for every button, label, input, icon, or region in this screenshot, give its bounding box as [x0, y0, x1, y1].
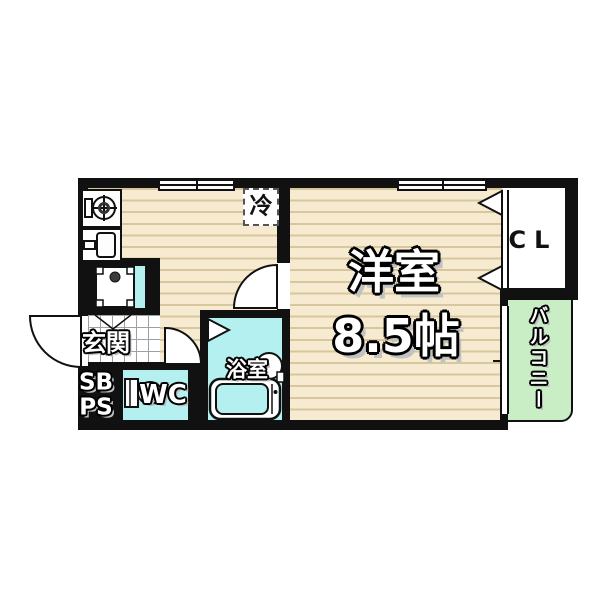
room-door-opening — [277, 263, 290, 309]
shaft-sb-label: SB — [79, 372, 113, 395]
wall-segment — [502, 288, 578, 299]
floor-plan: 洋室 8.5帖 CL 冷 玄関 浴室 WC SB PS バルコニー — [0, 0, 600, 600]
sliding-door-tick — [493, 360, 501, 362]
refrigerator-label: 冷 — [250, 196, 273, 219]
window-tick — [196, 181, 198, 189]
western-room-size-label: 8.5帖 — [332, 313, 460, 359]
balcony-sliding-door-icon — [500, 306, 509, 414]
western-room-floor — [290, 188, 502, 420]
window-tick — [442, 181, 444, 189]
wall-segment — [500, 288, 508, 308]
window-icon — [397, 179, 487, 191]
shaft-ps-label: PS — [79, 397, 112, 420]
toilet-label: WC — [139, 382, 187, 408]
bathroom-label: 浴室 — [226, 360, 268, 381]
balcony-label: バルコニー — [528, 306, 547, 411]
wall-segment — [500, 414, 508, 430]
western-room-label: 洋室 — [348, 249, 440, 295]
washer-strip — [135, 266, 145, 308]
washing-machine-pan-icon — [95, 266, 135, 308]
closet-label: CL — [509, 228, 558, 252]
window-icon — [158, 179, 235, 191]
entrance-label: 玄関 — [82, 331, 130, 355]
wall-segment — [78, 178, 578, 188]
stove-unit-icon — [81, 189, 122, 228]
sink-unit-icon — [81, 228, 122, 262]
entrance-door-arc-icon — [30, 316, 81, 367]
wall-segment — [565, 178, 578, 300]
